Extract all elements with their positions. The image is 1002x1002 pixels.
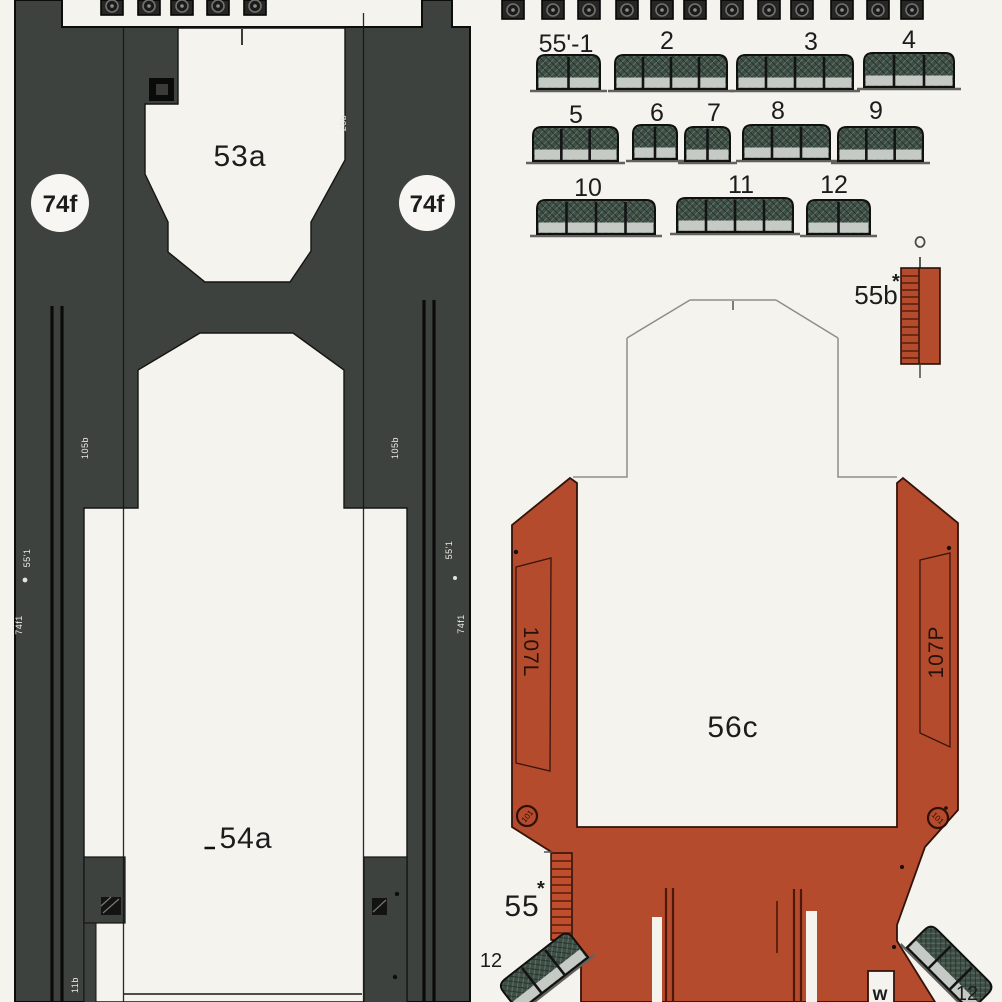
tiny-label-25b: 25b <box>338 115 348 132</box>
rivet-plate <box>684 0 706 19</box>
rivet-plate <box>171 0 193 15</box>
white-dot <box>453 576 457 580</box>
rivet-plate-row <box>101 0 923 19</box>
dot <box>892 945 896 949</box>
tiny-label-edge-right-1: 55'1 <box>444 541 454 560</box>
tiny-label-inner-left: 105b <box>80 437 90 459</box>
white-dot <box>23 578 28 583</box>
ladder-part-55b: 55b * <box>854 237 940 378</box>
fence-part-12 <box>800 200 877 236</box>
fence-label-5: 5 <box>569 101 583 129</box>
label-55: 55 <box>504 890 539 923</box>
rivet-plate <box>101 0 123 15</box>
slot-strip-left <box>84 923 96 1002</box>
fence-label-8: 8 <box>771 97 785 125</box>
label-107P: 107P <box>925 625 948 678</box>
tiny-label-edge-left-1: 55'1 <box>22 549 32 568</box>
fence-label-7: 7 <box>707 99 721 127</box>
fence-part-9 <box>831 127 930 163</box>
fence-part-3 <box>730 55 860 91</box>
fence-part-10 <box>530 200 662 236</box>
cut-slot-left <box>652 917 662 1002</box>
rivet-plate <box>721 0 743 19</box>
fence-label-12: 12 <box>820 171 848 199</box>
hook-icon <box>916 237 925 268</box>
hull-piece-56c: 101 101 56c 107L 107P 55 * w <box>504 478 958 1002</box>
rivet-plate <box>758 0 780 19</box>
fence-part-4 <box>857 53 961 89</box>
hatch-square-right <box>372 898 387 915</box>
rivet-plate <box>138 0 160 15</box>
rivet-plate <box>542 0 564 19</box>
fence-label-6: 6 <box>650 99 664 127</box>
circle-74f-right-label: 74f <box>410 191 446 218</box>
corner-fence-left-label: 12 <box>480 950 502 972</box>
fence-part-5 <box>526 127 625 163</box>
cut-slot-right <box>806 911 817 1002</box>
rivet-dot <box>395 892 399 896</box>
tiny-label-bottom-left: 11b <box>70 977 80 993</box>
hatch-plate-top-inner <box>156 84 168 95</box>
fence-part-6 <box>626 125 684 161</box>
fence-parts-strip: 55'-1 2 3 4 5 6 7 8 9 10 11 12 <box>526 26 961 236</box>
label-55b-star: * <box>892 271 900 293</box>
rivet-plate <box>651 0 673 19</box>
slot-block-right <box>364 857 407 1002</box>
hatch-square-left <box>101 897 121 915</box>
tiny-label-edge-left-2: 74f1 <box>14 615 24 635</box>
rivet-plate <box>207 0 229 15</box>
fence-label-4: 4 <box>902 26 916 54</box>
fence-part-7 <box>678 127 737 163</box>
fence-label-9: 9 <box>869 97 883 125</box>
label-107L: 107L <box>519 627 542 678</box>
hull-ladder <box>551 853 572 940</box>
dot <box>900 865 904 869</box>
label-54a: 54a <box>219 822 272 855</box>
fence-label-10: 10 <box>574 174 602 202</box>
dot <box>944 806 948 810</box>
deck-piece: 74f 74f 53a 54a 25b 105b 105b 55'1 7 <box>14 0 470 1002</box>
fence-part-8 <box>736 125 837 161</box>
fence-label-11: 11 <box>728 171 754 199</box>
rivet-plate <box>791 0 813 19</box>
fence-label-55-1: 55'-1 <box>539 30 594 58</box>
circle-74f-left-label: 74f <box>43 191 79 218</box>
rivet-dot <box>393 975 397 979</box>
rivet-plate <box>831 0 853 19</box>
label-55-star: * <box>537 878 545 900</box>
tiny-label-edge-right-2: 74f1 <box>456 614 466 634</box>
fence-label-3: 3 <box>804 28 818 56</box>
sheet-canvas: 74f 74f 53a 54a 25b 105b 105b 55'1 7 <box>0 0 1002 1002</box>
corner-fence-right-label: 12 <box>956 983 978 1002</box>
fence-part-2 <box>608 55 734 91</box>
label-56c: 56c <box>707 711 758 744</box>
fence-part-55-1 <box>530 55 607 91</box>
label-w-notch: w <box>872 984 888 1002</box>
rivet-plate <box>867 0 889 19</box>
dot <box>514 550 518 554</box>
label-53a: 53a <box>213 140 266 173</box>
fence-part-11 <box>670 198 800 234</box>
rivet-plate <box>901 0 923 19</box>
rivet-plate <box>244 0 266 15</box>
tiny-label-inner-right: 105b <box>390 437 400 459</box>
score-outline <box>573 300 897 477</box>
dot <box>947 546 951 550</box>
fence-label-2: 2 <box>660 27 674 55</box>
rivet-plate <box>616 0 638 19</box>
rivet-plate <box>502 0 524 19</box>
paper-model-parts-sheet: 74f 74f 53a 54a 25b 105b 105b 55'1 7 <box>0 0 1002 1002</box>
rivet-plate <box>578 0 600 19</box>
